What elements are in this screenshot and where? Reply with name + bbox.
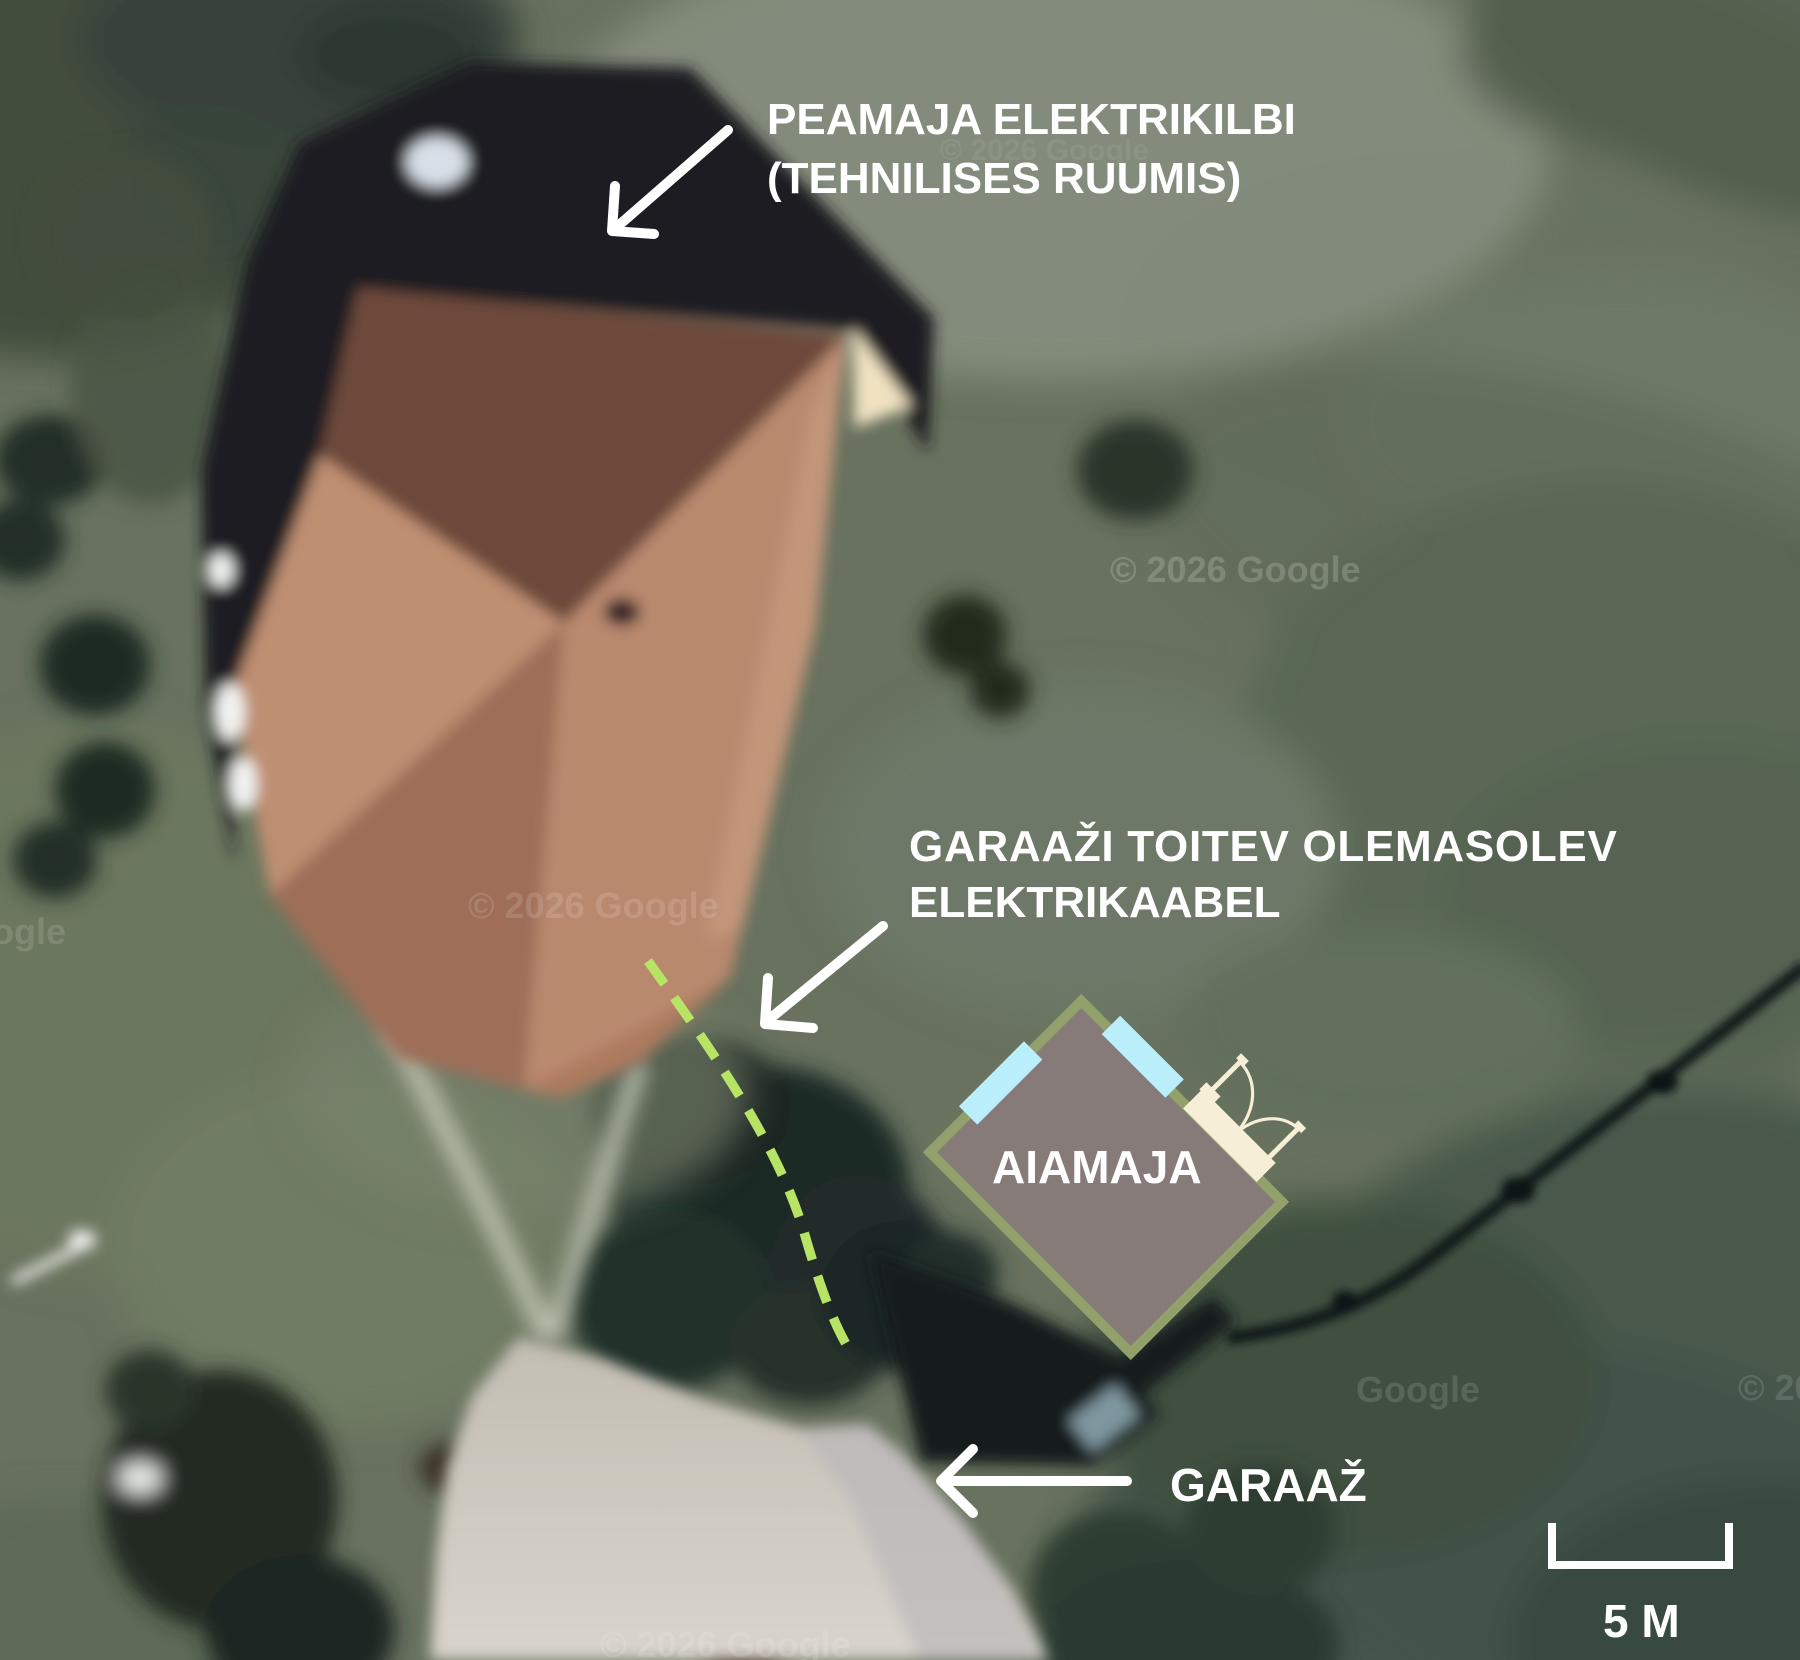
svg-text:GARAAŽ: GARAAŽ: [1170, 1459, 1367, 1511]
svg-text:© 2026 Google: © 2026 Google: [468, 885, 719, 926]
svg-text:AIAMAJA: AIAMAJA: [992, 1141, 1202, 1193]
svg-text:© 2026 Google: © 2026 Google: [1110, 549, 1361, 590]
svg-text:© 2026 Google: © 2026 Google: [600, 1624, 851, 1660]
svg-text:5 M: 5 M: [1603, 1595, 1680, 1647]
svg-text:© 20: © 20: [1738, 1367, 1800, 1408]
svg-text:PEAMAJA ELEKTRIKILBI: PEAMAJA ELEKTRIKILBI: [767, 95, 1296, 144]
svg-text:GARAAŽI TOITEV OLEMASOLEV: GARAAŽI TOITEV OLEMASOLEV: [909, 821, 1618, 871]
svg-text:(TEHNILISES RUUMIS): (TEHNILISES RUUMIS): [767, 154, 1241, 203]
svg-text:Google: Google: [1356, 1369, 1480, 1410]
svg-text:Google: Google: [0, 911, 66, 952]
svg-text:ELEKTRIKAABEL: ELEKTRIKAABEL: [909, 878, 1281, 927]
